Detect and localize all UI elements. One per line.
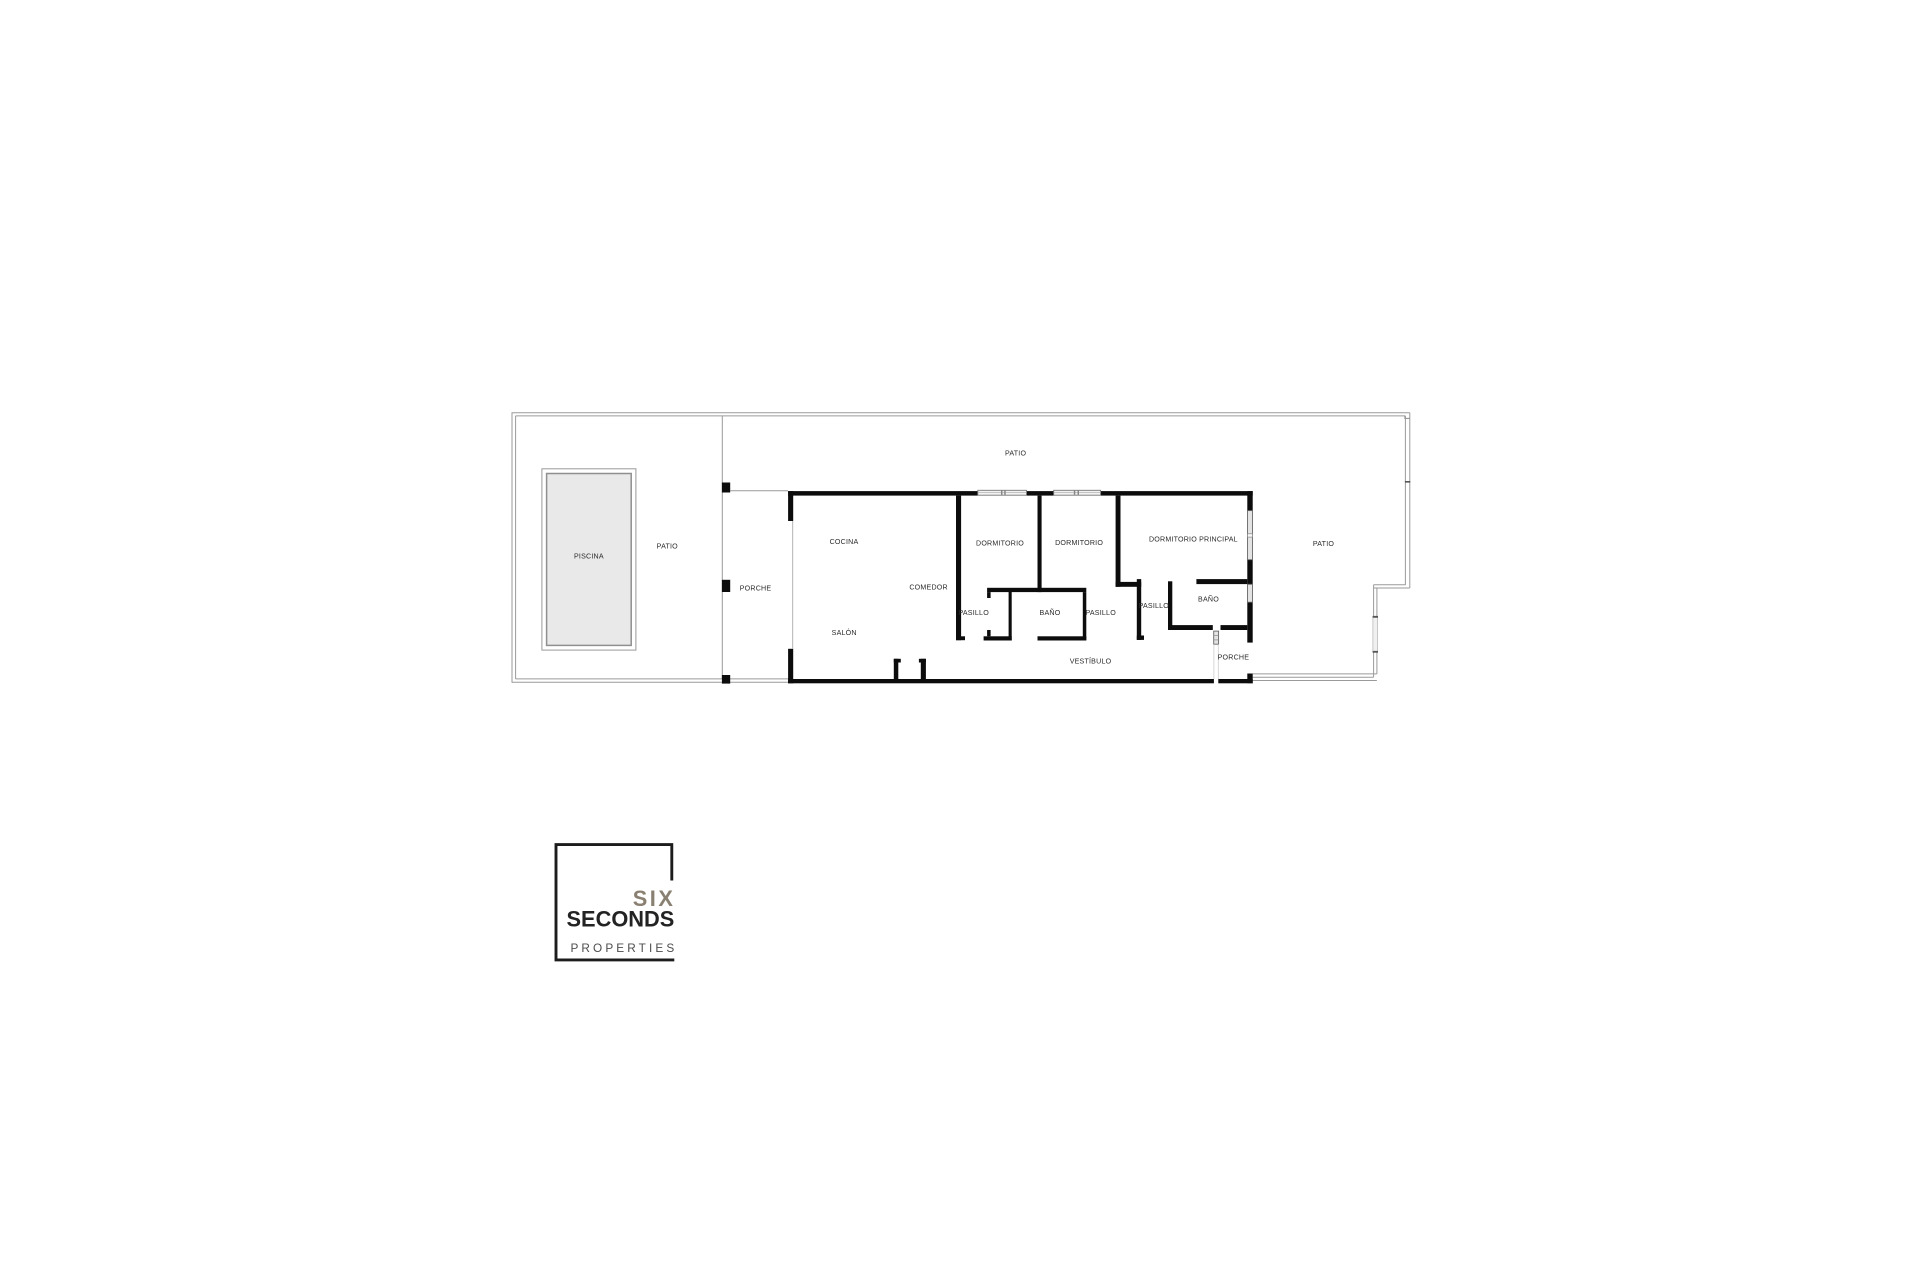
svg-text:PATIO: PATIO [657, 543, 679, 551]
svg-text:PASILLO: PASILLO [1139, 602, 1170, 610]
svg-text:BAÑO: BAÑO [1040, 608, 1061, 617]
svg-text:SALÓN: SALÓN [832, 628, 857, 637]
svg-text:PORCHE: PORCHE [740, 585, 772, 593]
svg-text:PISCINA: PISCINA [574, 552, 604, 560]
svg-text:DORMITORIO: DORMITORIO [976, 539, 1024, 547]
svg-text:DORMITORIO: DORMITORIO [1055, 539, 1103, 547]
svg-text:PATIO: PATIO [1005, 450, 1027, 458]
svg-text:BAÑO: BAÑO [1198, 594, 1219, 603]
svg-text:DORMITORIO PRINCIPAL: DORMITORIO PRINCIPAL [1149, 535, 1238, 543]
svg-text:PASILLO: PASILLO [1085, 609, 1116, 617]
svg-text:PORCHE: PORCHE [1218, 653, 1250, 661]
svg-text:COCINA: COCINA [830, 538, 859, 546]
svg-text:PROPERTIES: PROPERTIES [570, 941, 677, 955]
svg-text:VESTÍBULO: VESTÍBULO [1070, 656, 1112, 665]
svg-text:PATIO: PATIO [1313, 540, 1335, 548]
svg-text:PASILLO: PASILLO [958, 609, 989, 617]
svg-text:SECONDS: SECONDS [567, 907, 675, 932]
svg-text:COMEDOR: COMEDOR [909, 583, 947, 591]
